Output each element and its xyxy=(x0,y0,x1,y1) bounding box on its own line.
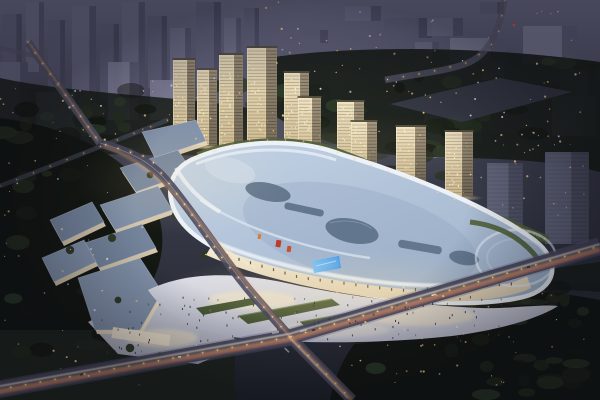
rendering-canvas xyxy=(0,0,600,400)
vignette xyxy=(0,0,600,400)
aerial-rendering: Aerial dusk rendering of a mixed-use dev… xyxy=(0,0,600,400)
